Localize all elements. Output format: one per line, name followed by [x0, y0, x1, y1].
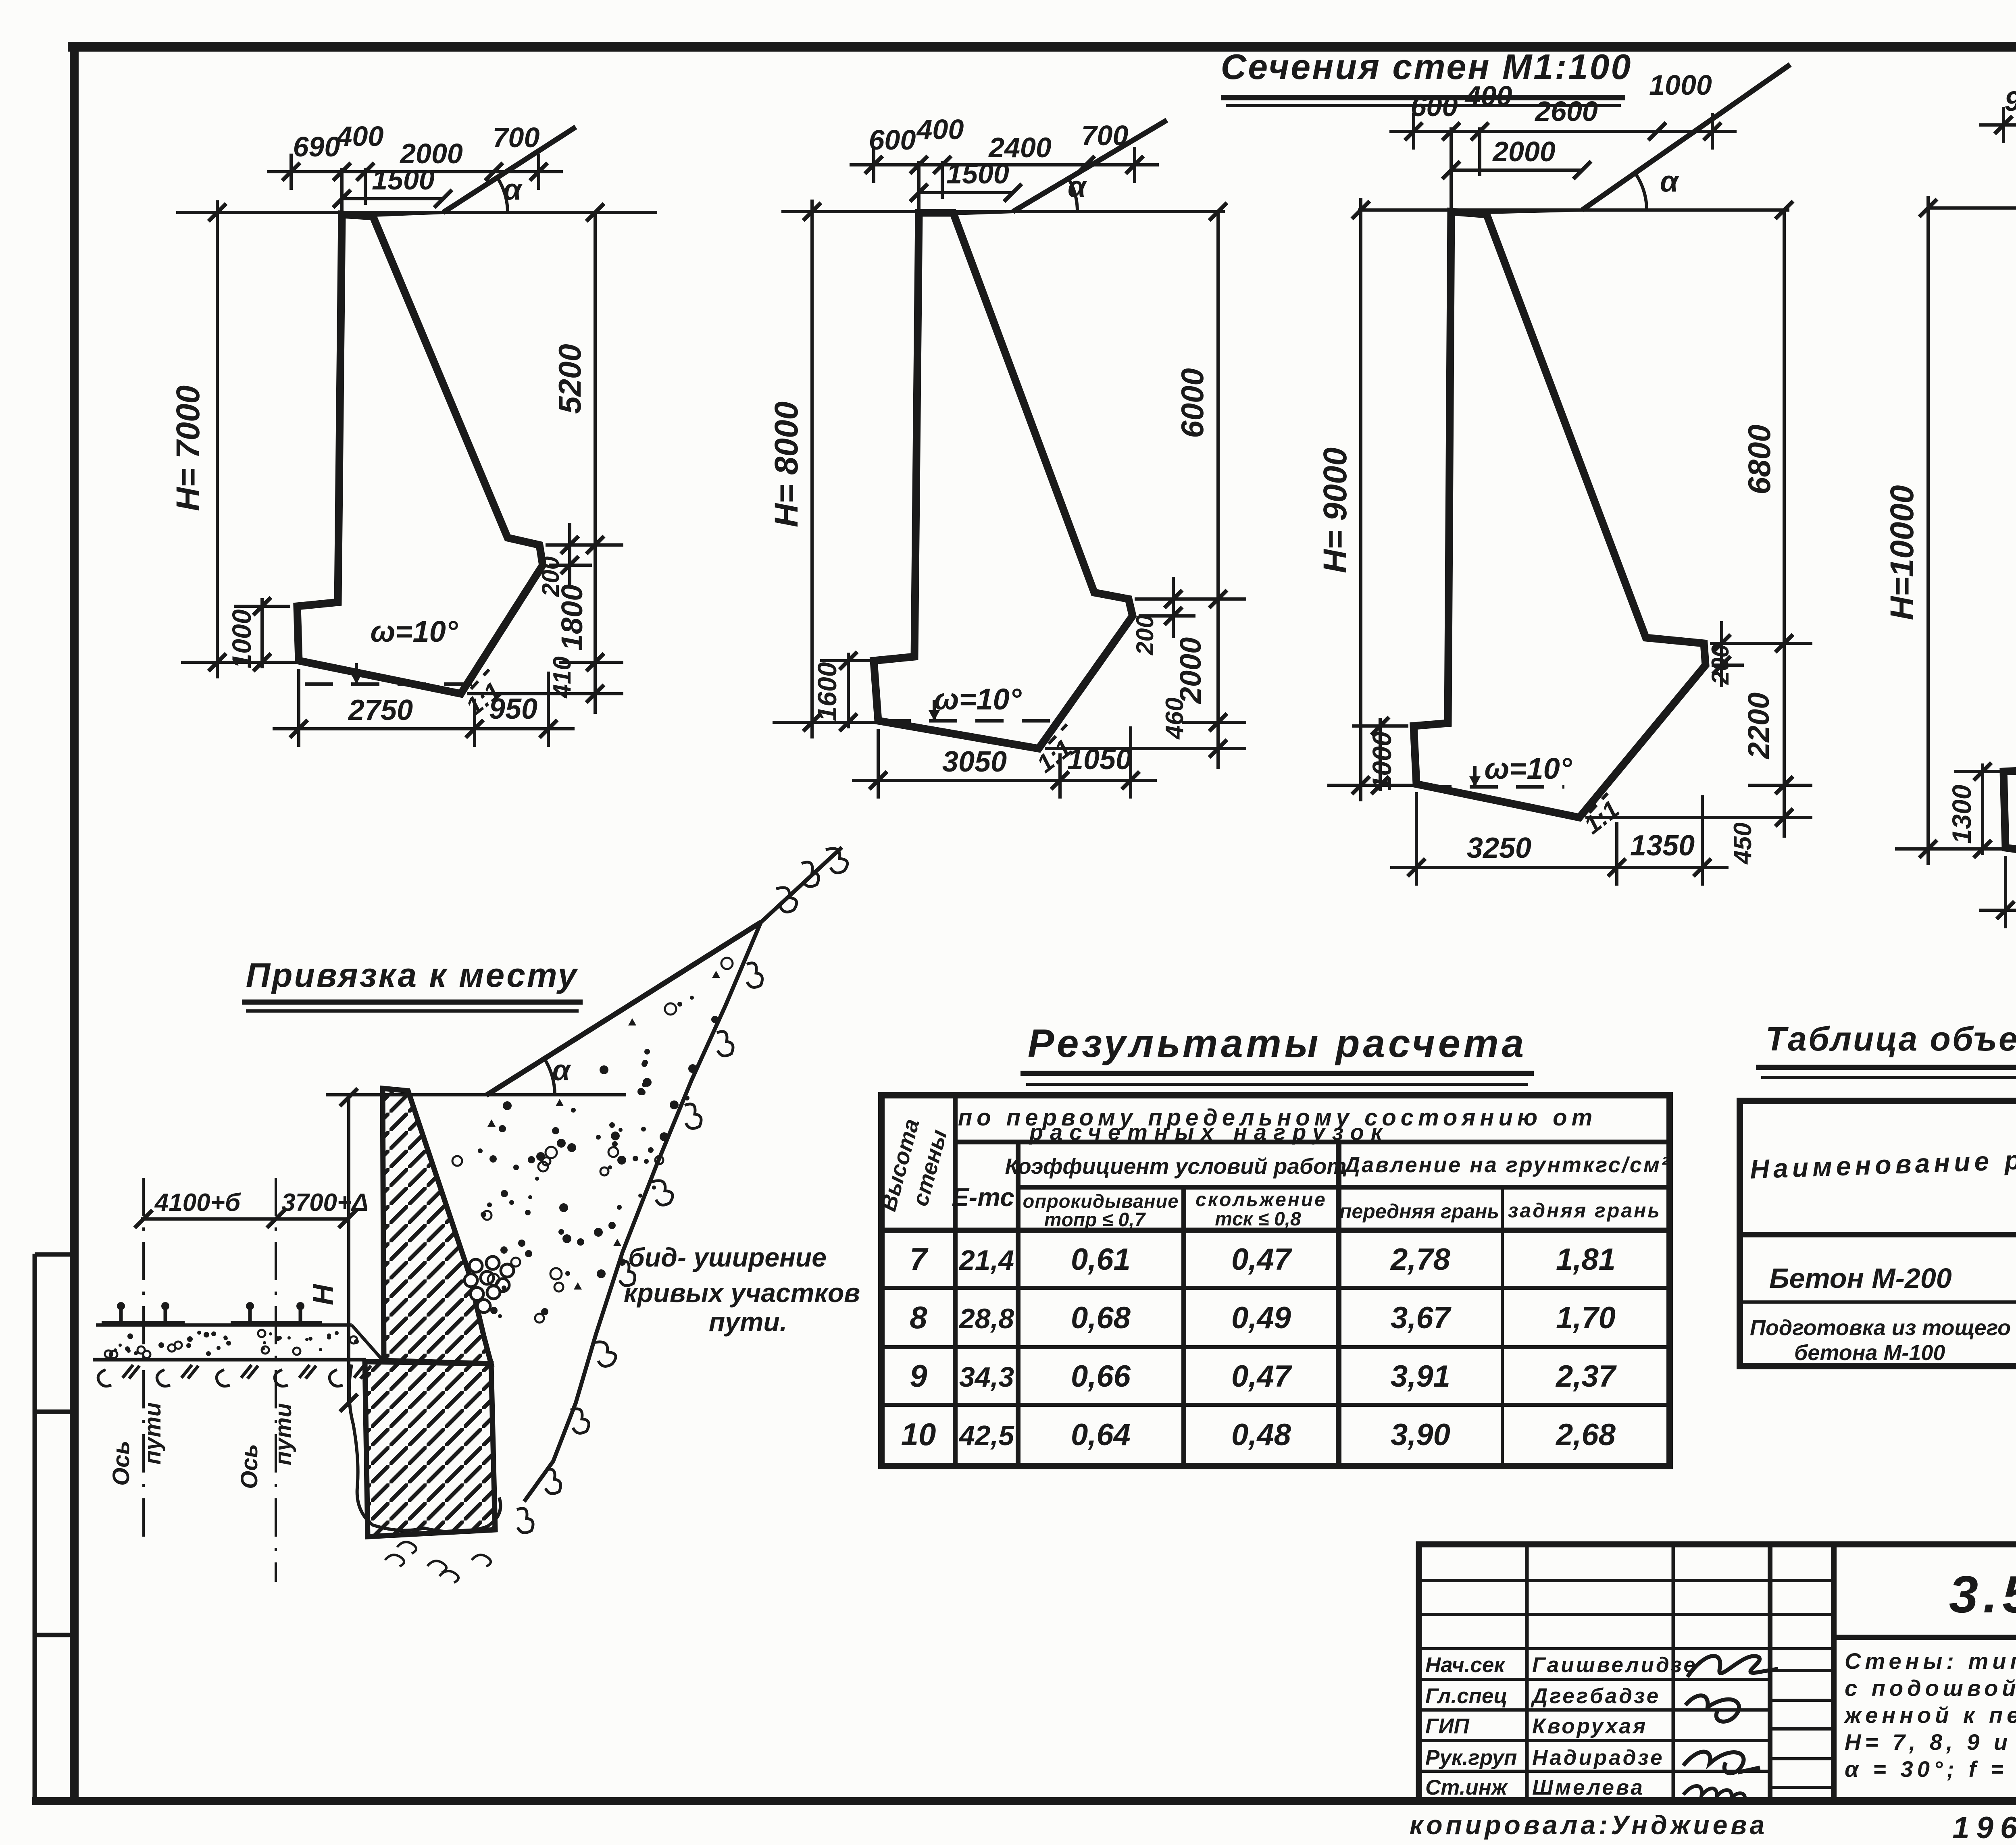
svg-text:700: 700 — [493, 122, 540, 153]
svg-text:кривых участков: кривых участков — [624, 1278, 860, 1308]
svg-text:Коэффициент условий работ: Коэффициент условий работ — [1005, 1154, 1347, 1179]
svg-text:700: 700 — [1081, 120, 1129, 151]
svg-text:Шмелева: Шмелева — [1532, 1776, 1645, 1799]
svg-text:α = 30°; f = 0,6.: α = 30°; f = 0,6. — [1845, 1756, 2016, 1782]
svg-text:400: 400 — [1464, 80, 1512, 112]
svg-text:460: 460 — [1161, 697, 1189, 740]
svg-text:скольжение: скольжение — [1195, 1189, 1327, 1211]
svg-text:mопр ≤ 0,7: mопр ≤ 0,7 — [1044, 1209, 1146, 1231]
svg-text:Ось: Ось — [236, 1444, 262, 1489]
svg-text:ω=10°: ω=10° — [371, 615, 458, 648]
svg-text:Кворухая: Кворухая — [1532, 1714, 1647, 1738]
svg-text:H= 8000: H= 8000 — [768, 401, 805, 527]
svg-text:Таблица объемов кладки на1п.м.: Таблица объемов кладки на1п.м. стены — [1766, 1020, 2016, 1058]
svg-text:α: α — [1068, 170, 1087, 203]
svg-text:задняя грань: задняя грань — [1508, 1199, 1661, 1222]
svg-text:ω=10°: ω=10° — [934, 682, 1022, 716]
svg-text:1600: 1600 — [812, 662, 842, 721]
svg-text:2,37: 2,37 — [1555, 1359, 1617, 1394]
svg-text:с подошвой откоса прибли-: с подошвой откоса прибли- — [1845, 1675, 2016, 1701]
svg-text:0,66: 0,66 — [1071, 1359, 1131, 1394]
svg-text:19682- 01: 19682- 01 — [1952, 1811, 2016, 1845]
svg-text:200: 200 — [1707, 644, 1734, 685]
svg-text:3.501.1-135.0-19: 3.501.1-135.0-19 — [1949, 1565, 2016, 1624]
svg-text:6800: 6800 — [1741, 424, 1777, 495]
svg-text:2,78: 2,78 — [1390, 1242, 1451, 1277]
svg-text:женной к передней грани: женной к передней грани — [1843, 1702, 2016, 1728]
svg-text:передняя грань: передняя грань — [1339, 1200, 1499, 1223]
svg-text:копировала:Унджиева: копировала:Унджиева — [1410, 1810, 1768, 1840]
svg-text:расчетных нагрузок: расчетных нагрузок — [1029, 1119, 1389, 1145]
svg-text:8: 8 — [910, 1300, 927, 1335]
svg-text:пути.: пути. — [709, 1307, 787, 1337]
svg-text:Дгегбадзе: Дгегбадзе — [1531, 1684, 1660, 1708]
svg-text:1000: 1000 — [1649, 69, 1712, 101]
svg-text:E-тс: E-тс — [952, 1183, 1014, 1212]
svg-text:H= 9000: H= 9000 — [1317, 447, 1354, 573]
svg-text:4100+б: 4100+б — [154, 1189, 241, 1217]
svg-text:28,8: 28,8 — [958, 1303, 1014, 1334]
svg-text:бетона М-100: бетона М-100 — [1794, 1341, 1945, 1365]
svg-text:34,3: 34,3 — [959, 1361, 1014, 1393]
svg-text:ГИП: ГИП — [1425, 1714, 1470, 1738]
svg-text:1500: 1500 — [946, 158, 1009, 189]
svg-text:450: 450 — [1729, 822, 1757, 865]
svg-text:1,81: 1,81 — [1556, 1242, 1616, 1277]
svg-text:2600: 2600 — [1534, 96, 1598, 127]
svg-text:400: 400 — [916, 114, 964, 145]
svg-text:0,47: 0,47 — [1231, 1359, 1293, 1394]
svg-text:Ось: Ось — [108, 1441, 134, 1486]
svg-text:600: 600 — [869, 124, 916, 156]
svg-text:Подготовка из тощего: Подготовка из тощего — [1750, 1316, 2011, 1340]
svg-text:1500: 1500 — [372, 164, 435, 196]
svg-text:α: α — [503, 173, 523, 206]
svg-text:Гл.спец: Гл.спец — [1425, 1684, 1508, 1708]
svg-text:2200: 2200 — [1742, 693, 1775, 760]
svg-text:mск ≤ 0,8: mск ≤ 0,8 — [1215, 1209, 1301, 1230]
svg-text:2000: 2000 — [1492, 136, 1556, 167]
svg-text:Результаты расчета: Результаты расчета — [1028, 1021, 1527, 1065]
svg-text:α: α — [1660, 164, 1680, 198]
svg-text:7: 7 — [910, 1241, 929, 1277]
svg-text:1050: 1050 — [1067, 743, 1132, 776]
svg-text:1,70: 1,70 — [1556, 1301, 1616, 1335]
svg-text:600: 600 — [1411, 91, 1458, 122]
svg-text:950: 950 — [489, 693, 537, 725]
svg-text:Нач.сек: Нач.сек — [1425, 1653, 1506, 1677]
svg-text:Н: Н — [307, 1283, 339, 1305]
svg-text:9: 9 — [910, 1358, 927, 1394]
svg-text:3700+Δ: 3700+Δ — [281, 1189, 369, 1217]
svg-text:Надирадзе: Надирадзе — [1532, 1746, 1664, 1770]
svg-text:690: 690 — [293, 131, 340, 162]
svg-text:пути: пути — [140, 1402, 166, 1465]
svg-text:900: 900 — [2005, 85, 2016, 117]
svg-text:200: 200 — [1131, 615, 1158, 655]
svg-text:H= 7000: H= 7000 — [170, 385, 206, 511]
svg-text:0,48: 0,48 — [1231, 1418, 1291, 1452]
svg-text:0,68: 0,68 — [1071, 1301, 1131, 1335]
svg-text:0,47: 0,47 — [1231, 1242, 1293, 1277]
svg-text:H=10000: H=10000 — [1884, 485, 1920, 620]
svg-text:1350: 1350 — [1630, 830, 1695, 862]
svg-text:2,68: 2,68 — [1555, 1418, 1616, 1452]
svg-text:ω=10°: ω=10° — [1485, 752, 1572, 785]
svg-text:Давление на грунткгс/см²: Давление на грунткгс/см² — [1343, 1153, 1670, 1177]
svg-text:1000: 1000 — [227, 609, 256, 668]
svg-text:3,90: 3,90 — [1391, 1418, 1450, 1452]
svg-text:Рук.груп: Рук.груп — [1425, 1746, 1517, 1770]
svg-text:3250: 3250 — [1467, 832, 1531, 864]
svg-text:5200: 5200 — [552, 344, 587, 414]
svg-text:опрокидывание: опрокидывание — [1023, 1190, 1179, 1212]
svg-text:400: 400 — [336, 121, 384, 152]
svg-text:Н= 7, 8, 9 и 10м при Ψ=35°;: Н= 7, 8, 9 и 10м при Ψ=35°; — [1845, 1729, 2016, 1755]
svg-text:2750: 2750 — [348, 694, 413, 726]
svg-text:1000: 1000 — [1367, 731, 1397, 790]
svg-text:Ст.инж: Ст.инж — [1425, 1776, 1508, 1799]
svg-text:0,64: 0,64 — [1071, 1418, 1131, 1452]
svg-text:1300: 1300 — [1947, 784, 1976, 844]
svg-text:3,67: 3,67 — [1391, 1301, 1452, 1335]
svg-text:0,49: 0,49 — [1231, 1301, 1291, 1335]
svg-text:Гаишвелидзе: Гаишвелидзе — [1532, 1653, 1697, 1677]
svg-text:Стены: тип-I, верховые,: Стены: тип-I, верховые, — [1845, 1648, 2016, 1674]
svg-text:2000: 2000 — [1174, 637, 1207, 705]
svg-text:10: 10 — [901, 1417, 936, 1452]
svg-text:Сечения стен М1:100: Сечения стен М1:100 — [1221, 47, 1633, 87]
svg-text:Привязка к месту: Привязка к месту — [246, 956, 579, 994]
svg-text:42,5: 42,5 — [958, 1420, 1014, 1451]
svg-text:пути: пути — [270, 1403, 296, 1466]
svg-text:6000: 6000 — [1175, 368, 1210, 438]
svg-text:3,91: 3,91 — [1391, 1359, 1450, 1394]
svg-text:α: α — [552, 1055, 572, 1087]
svg-text:200: 200 — [537, 556, 564, 597]
svg-text:3050: 3050 — [942, 746, 1007, 778]
svg-text:21,4: 21,4 — [958, 1244, 1014, 1276]
svg-text:Бетон М-200: Бетон М-200 — [1769, 1263, 1952, 1294]
svg-text:бид- уширение: бид- уширение — [628, 1242, 827, 1272]
svg-text:410: 410 — [548, 656, 576, 699]
svg-text:0,61: 0,61 — [1071, 1242, 1131, 1277]
